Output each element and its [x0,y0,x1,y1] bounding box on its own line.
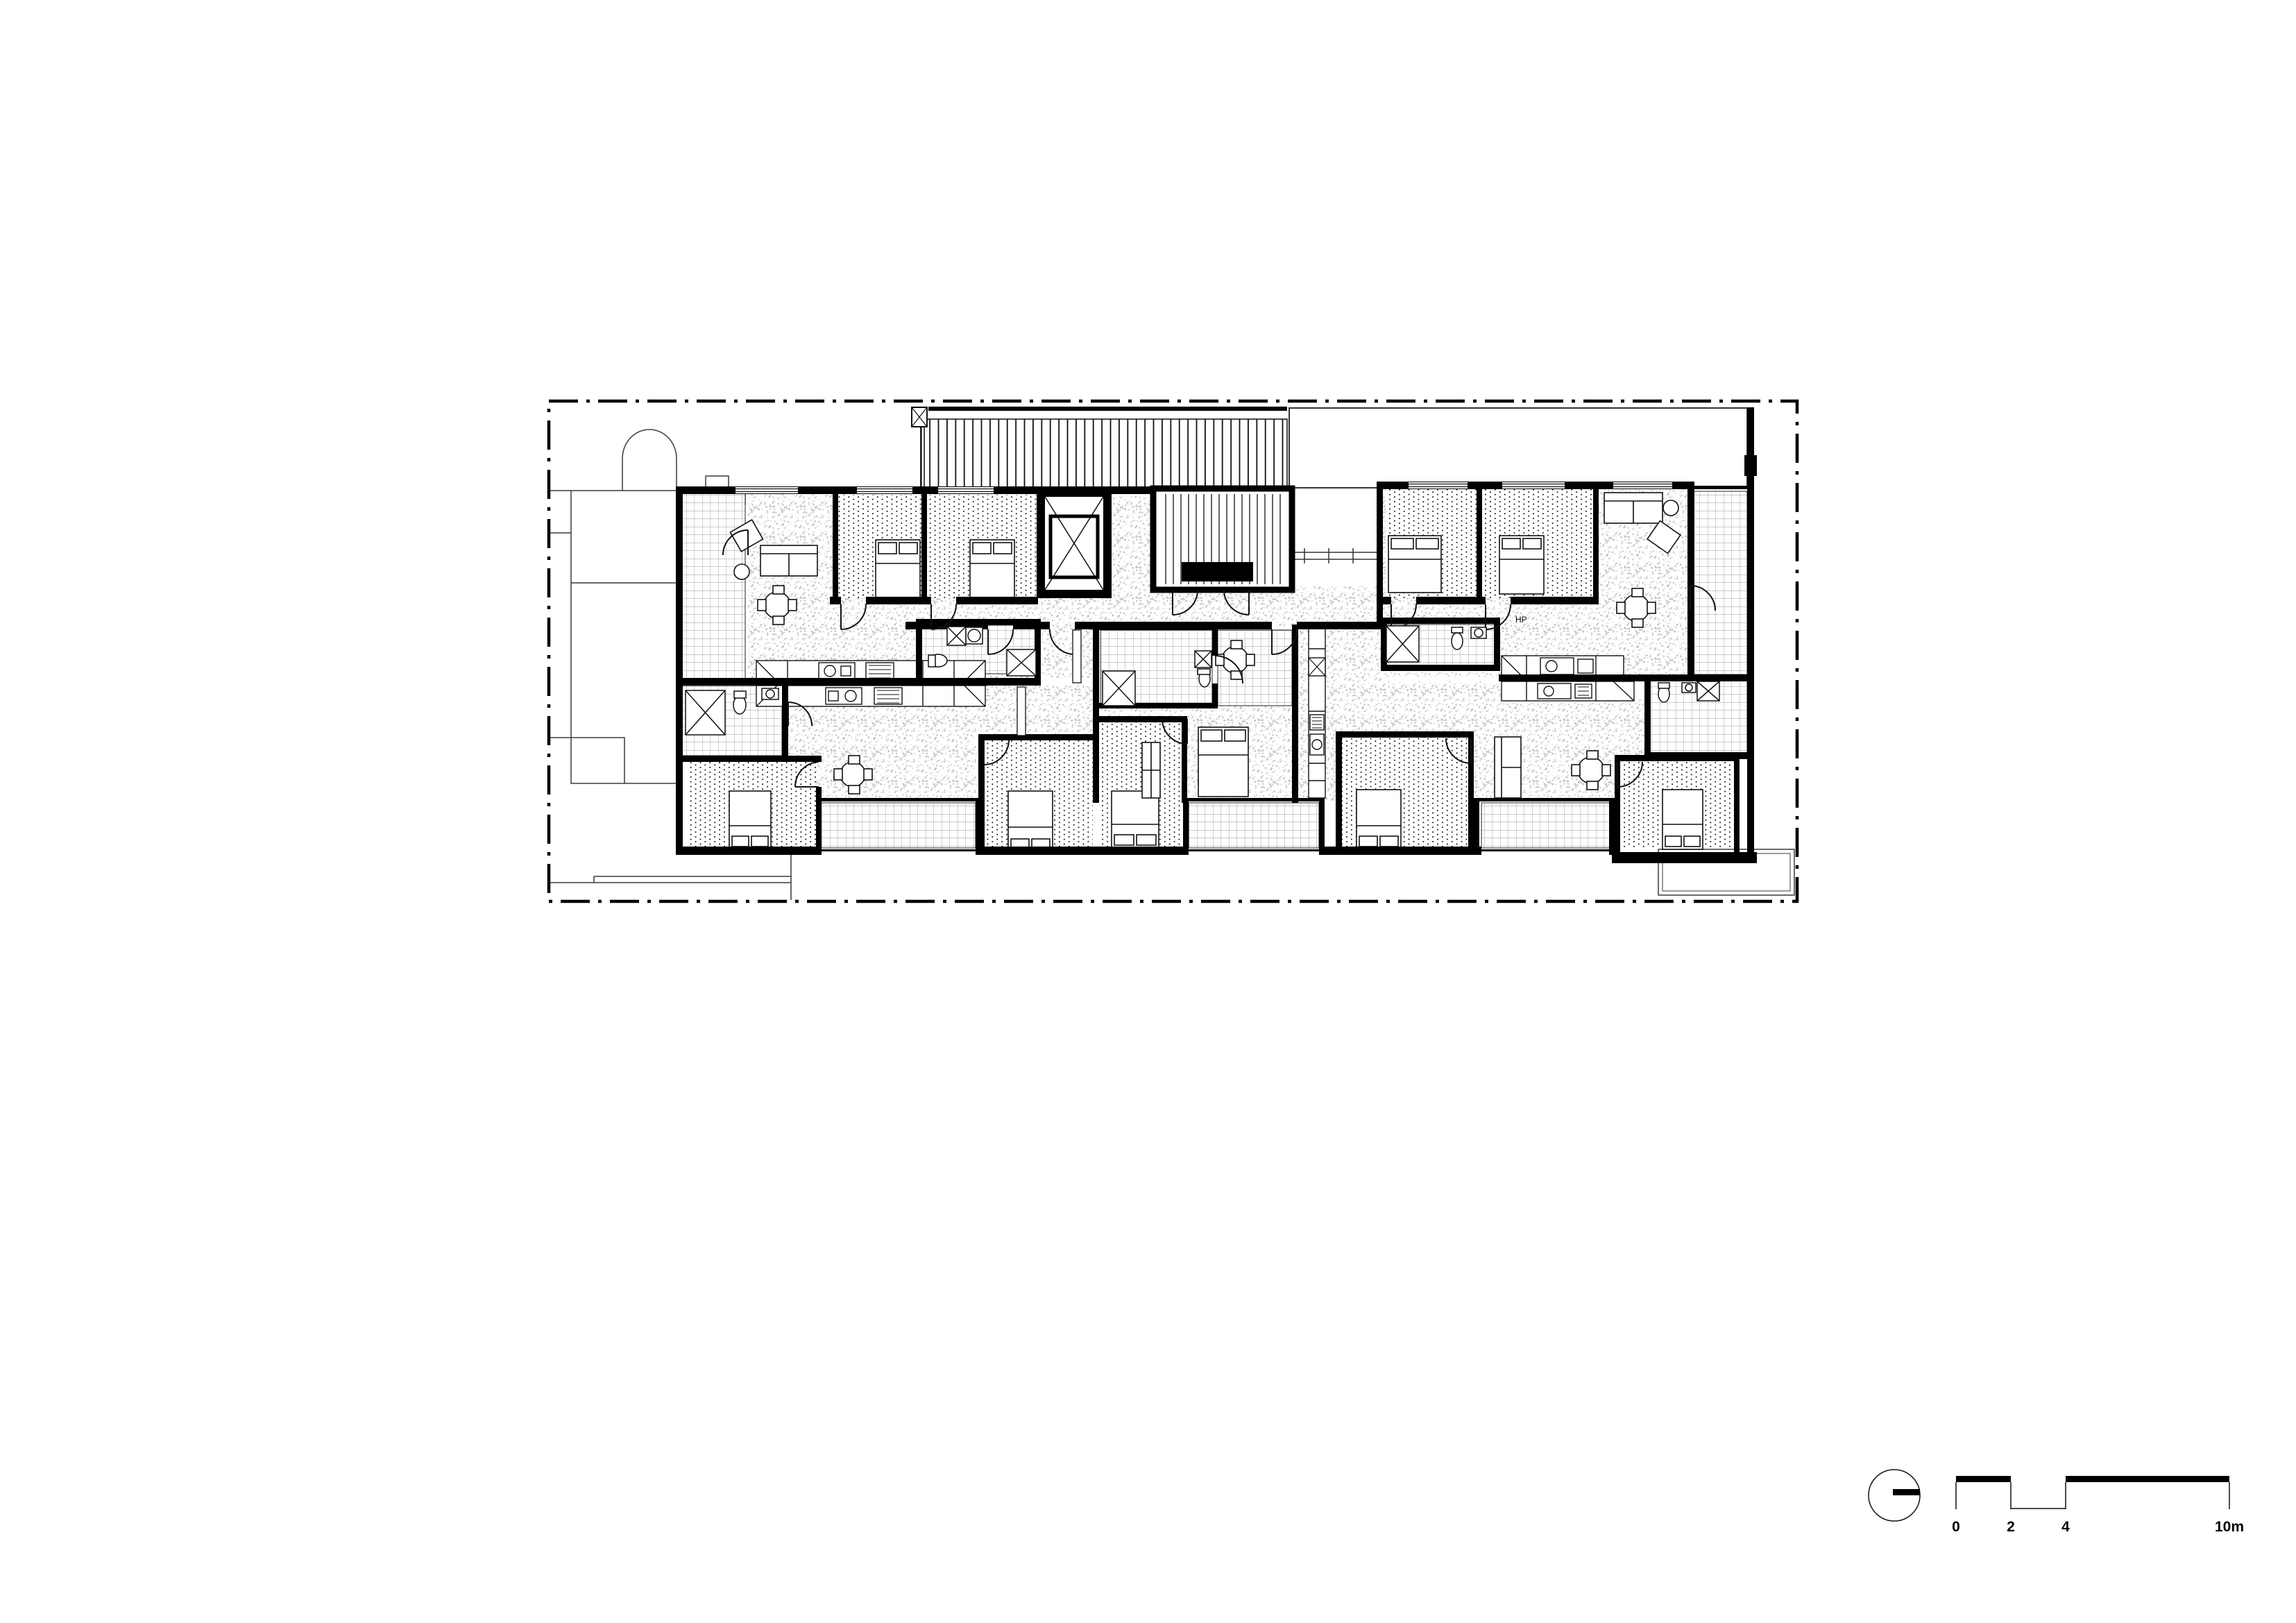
svg-text:0: 0 [1952,1519,1960,1535]
svg-text:10m: 10m [2215,1519,2244,1535]
svg-text:HP: HP [1515,615,1527,624]
svg-text:4: 4 [2061,1519,2070,1535]
svg-text:2: 2 [2007,1519,2015,1535]
